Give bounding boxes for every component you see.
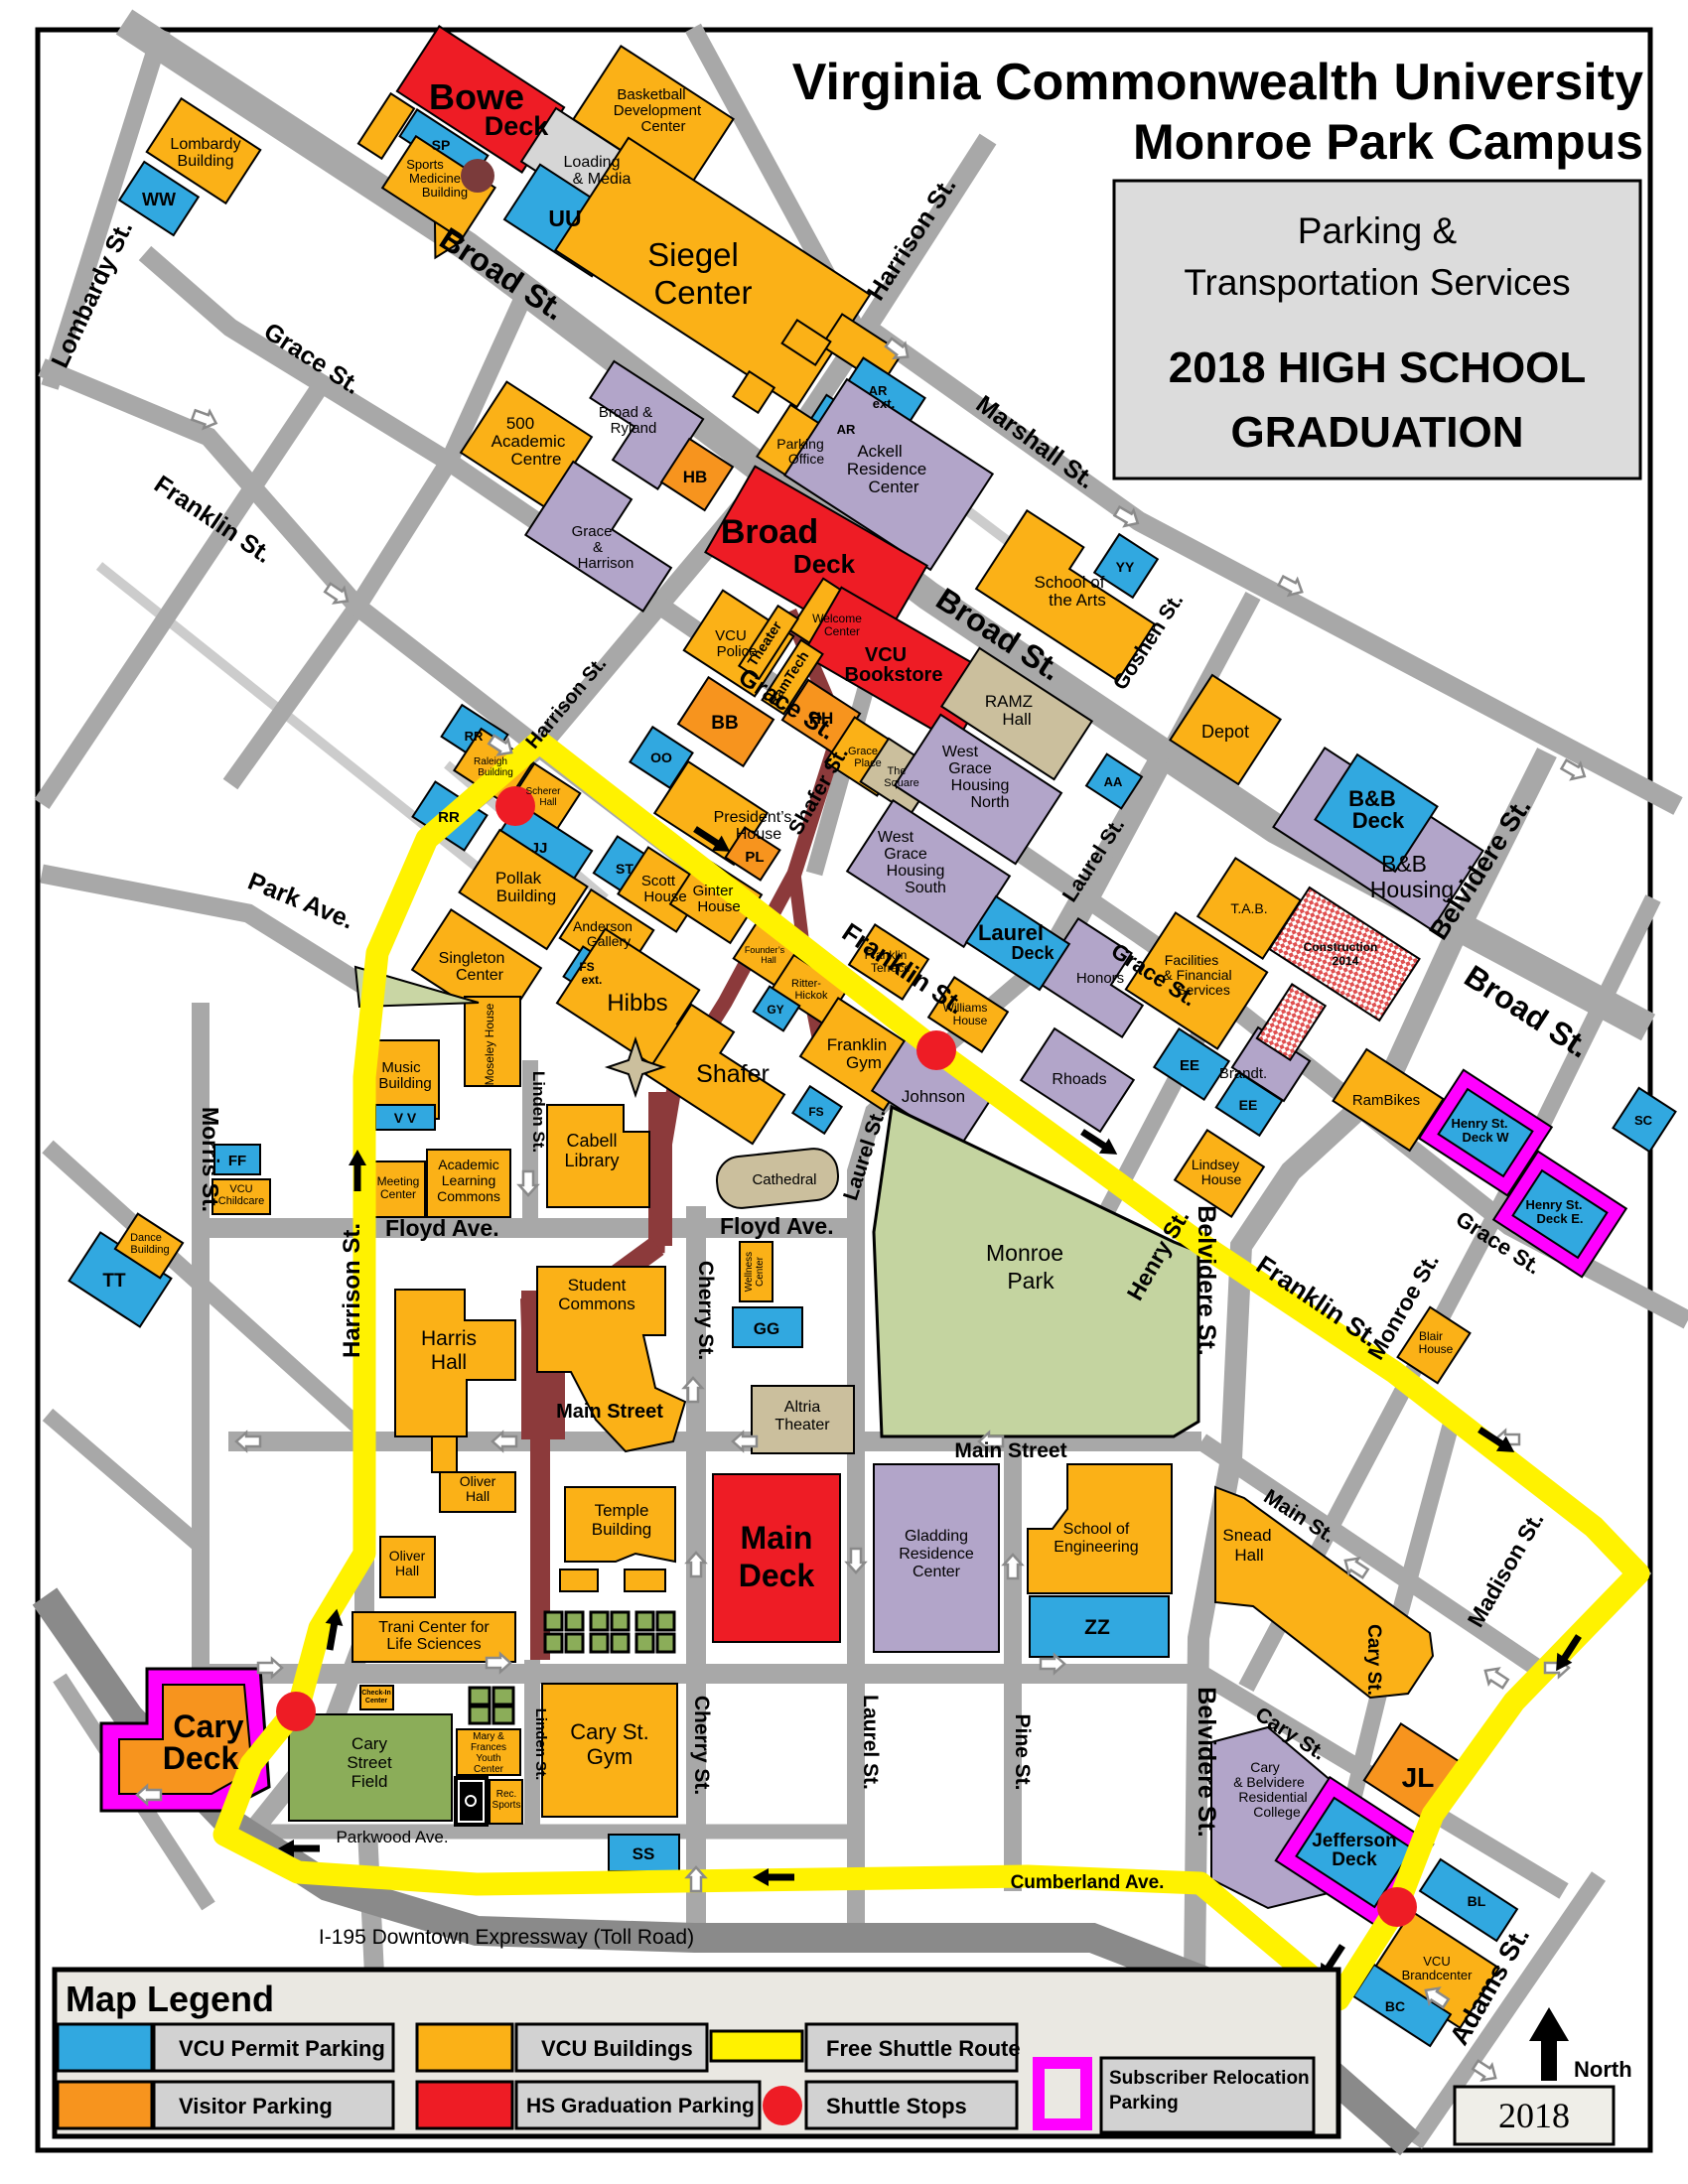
svg-text:Center: Center xyxy=(755,1256,766,1287)
svg-text:FranklinTerrace: FranklinTerrace xyxy=(865,948,912,975)
svg-text:T.A.B.: T.A.B. xyxy=(1230,900,1267,916)
svg-text:SP: SP xyxy=(432,137,451,153)
svg-text:AR: AR xyxy=(837,422,856,437)
svg-text:GG: GG xyxy=(754,1319,779,1338)
svg-text:Broad: Broad xyxy=(721,513,818,551)
svg-text:Check-InCenter: Check-InCenter xyxy=(361,1690,391,1705)
svg-text:LombardyBuilding: LombardyBuilding xyxy=(170,136,240,170)
svg-text:FS: FS xyxy=(808,1105,823,1119)
svg-text:Harrison St.: Harrison St. xyxy=(339,1223,365,1358)
svg-text:HH: HH xyxy=(809,709,834,728)
svg-text:Map Legend: Map Legend xyxy=(66,1979,274,2019)
svg-text:Rec.Sports: Rec.Sports xyxy=(492,1789,521,1811)
svg-text:HB: HB xyxy=(683,468,708,486)
svg-text:WW: WW xyxy=(142,190,176,209)
svg-text:2018 HIGH SCHOOL: 2018 HIGH SCHOOL xyxy=(1169,343,1587,392)
svg-text:CaryStreetField: CaryStreetField xyxy=(347,1734,392,1791)
svg-text:Transportation Services: Transportation Services xyxy=(1184,262,1570,303)
svg-text:UU: UU xyxy=(548,205,581,231)
svg-text:BC: BC xyxy=(1385,1998,1405,2014)
svg-text:Cathedral: Cathedral xyxy=(752,1171,816,1188)
svg-text:TempleBuilding: TempleBuilding xyxy=(592,1501,652,1539)
svg-text:Parkwood Ave.: Parkwood Ave. xyxy=(336,1828,448,1846)
svg-text:SS: SS xyxy=(633,1844,655,1863)
svg-text:JJ: JJ xyxy=(531,840,548,857)
svg-text:Johnson: Johnson xyxy=(902,1087,965,1106)
svg-text:RR: RR xyxy=(438,809,460,826)
svg-text:BL: BL xyxy=(1468,1893,1486,1909)
svg-text:AcademicLearningCommons: AcademicLearningCommons xyxy=(437,1157,500,1204)
svg-text:CabellLibrary: CabellLibrary xyxy=(564,1131,619,1170)
svg-text:ZZ: ZZ xyxy=(1084,1616,1110,1639)
svg-text:Laurel: Laurel xyxy=(978,920,1044,945)
svg-text:Wellness: Wellness xyxy=(744,1252,755,1292)
svg-text:Belvidere St.: Belvidere St. xyxy=(1193,1687,1220,1837)
svg-text:Floyd Ave.: Floyd Ave. xyxy=(720,1213,834,1239)
svg-text:MeetingCenter: MeetingCenter xyxy=(377,1174,420,1201)
svg-text:Brandt.: Brandt. xyxy=(1219,1065,1267,1082)
svg-text:Deck: Deck xyxy=(793,549,856,579)
svg-text:Deck: Deck xyxy=(1011,943,1055,963)
svg-text:Virginia Commonwealth Universi: Virginia Commonwealth University xyxy=(792,54,1643,111)
svg-text:North: North xyxy=(1574,2057,1632,2082)
svg-text:Shuttle Stops: Shuttle Stops xyxy=(826,2094,967,2118)
svg-text:Monroe Park Campus: Monroe Park Campus xyxy=(1133,114,1643,170)
svg-text:Free Shuttle Route: Free Shuttle Route xyxy=(826,2036,1021,2061)
svg-text:Visitor Parking: Visitor Parking xyxy=(179,2094,333,2118)
svg-text:ST: ST xyxy=(616,861,633,877)
svg-text:PL: PL xyxy=(745,849,764,866)
svg-text:Honors: Honors xyxy=(1076,970,1124,987)
svg-text:OO: OO xyxy=(650,750,672,765)
svg-text:SC: SC xyxy=(1634,1113,1653,1128)
svg-text:Trani Center forLife Sciences: Trani Center forLife Sciences xyxy=(378,1619,490,1653)
svg-text:VCU Buildings: VCU Buildings xyxy=(541,2036,693,2061)
svg-text:Cary St.: Cary St. xyxy=(1363,1624,1384,1696)
svg-text:Rhoads: Rhoads xyxy=(1052,1071,1106,1088)
svg-text:RR: RR xyxy=(465,729,484,744)
svg-text:School ofEngineering: School ofEngineering xyxy=(1054,1521,1138,1556)
svg-text:GY: GY xyxy=(767,1003,783,1017)
svg-text:BB: BB xyxy=(711,713,738,734)
svg-text:Hibbs: Hibbs xyxy=(607,990,667,1017)
svg-text:Cherry St.: Cherry St. xyxy=(694,1261,717,1360)
svg-text:Cumberland Ave.: Cumberland Ave. xyxy=(1011,1872,1165,1893)
svg-text:Linden St.: Linden St. xyxy=(532,1708,549,1781)
svg-text:TT: TT xyxy=(102,1271,126,1292)
svg-text:JL: JL xyxy=(1402,1762,1435,1793)
svg-text:Linden St.: Linden St. xyxy=(529,1071,548,1153)
svg-text:YY: YY xyxy=(1116,559,1135,575)
svg-text:Pine St.: Pine St. xyxy=(1011,1713,1034,1790)
svg-text:HS Graduation Parking: HS Graduation Parking xyxy=(526,2095,755,2117)
svg-text:Belvidere St.: Belvidere St. xyxy=(1193,1205,1220,1355)
svg-text:Main Street: Main Street xyxy=(556,1401,663,1423)
svg-text:Depot: Depot xyxy=(1201,722,1249,742)
svg-text:2018: 2018 xyxy=(1498,2096,1570,2135)
svg-text:VCU Permit Parking: VCU Permit Parking xyxy=(179,2036,385,2061)
svg-text:EE: EE xyxy=(1180,1057,1199,1074)
svg-text:Cherry St.: Cherry St. xyxy=(690,1696,713,1795)
svg-text:FF: FF xyxy=(228,1153,246,1169)
svg-text:SiegelCenter: SiegelCenter xyxy=(647,236,752,311)
svg-text:Floyd Ave.: Floyd Ave. xyxy=(385,1215,499,1241)
svg-text:GRADUATION: GRADUATION xyxy=(1231,408,1524,457)
svg-text:Laurel St.: Laurel St. xyxy=(859,1695,882,1790)
svg-text:Shafer: Shafer xyxy=(696,1060,770,1088)
svg-text:AA: AA xyxy=(1104,774,1123,789)
svg-text:I-195 Downtown Expressway (Tol: I-195 Downtown Expressway (Toll Road) xyxy=(319,1926,694,1949)
svg-text:StudentCommons: StudentCommons xyxy=(558,1276,634,1313)
svg-text:Deck: Deck xyxy=(485,111,550,141)
svg-text:Parking &: Parking & xyxy=(1298,210,1458,251)
svg-text:EE: EE xyxy=(1239,1097,1258,1113)
svg-text:V V: V V xyxy=(394,1110,417,1126)
svg-text:Main Street: Main Street xyxy=(954,1439,1066,1462)
svg-text:CaryDeck: CaryDeck xyxy=(163,1708,244,1776)
svg-text:RamBikes: RamBikes xyxy=(1352,1092,1420,1109)
svg-text:RaleighBuilding: RaleighBuilding xyxy=(474,756,513,778)
svg-text:Moseley House: Moseley House xyxy=(483,1003,496,1085)
